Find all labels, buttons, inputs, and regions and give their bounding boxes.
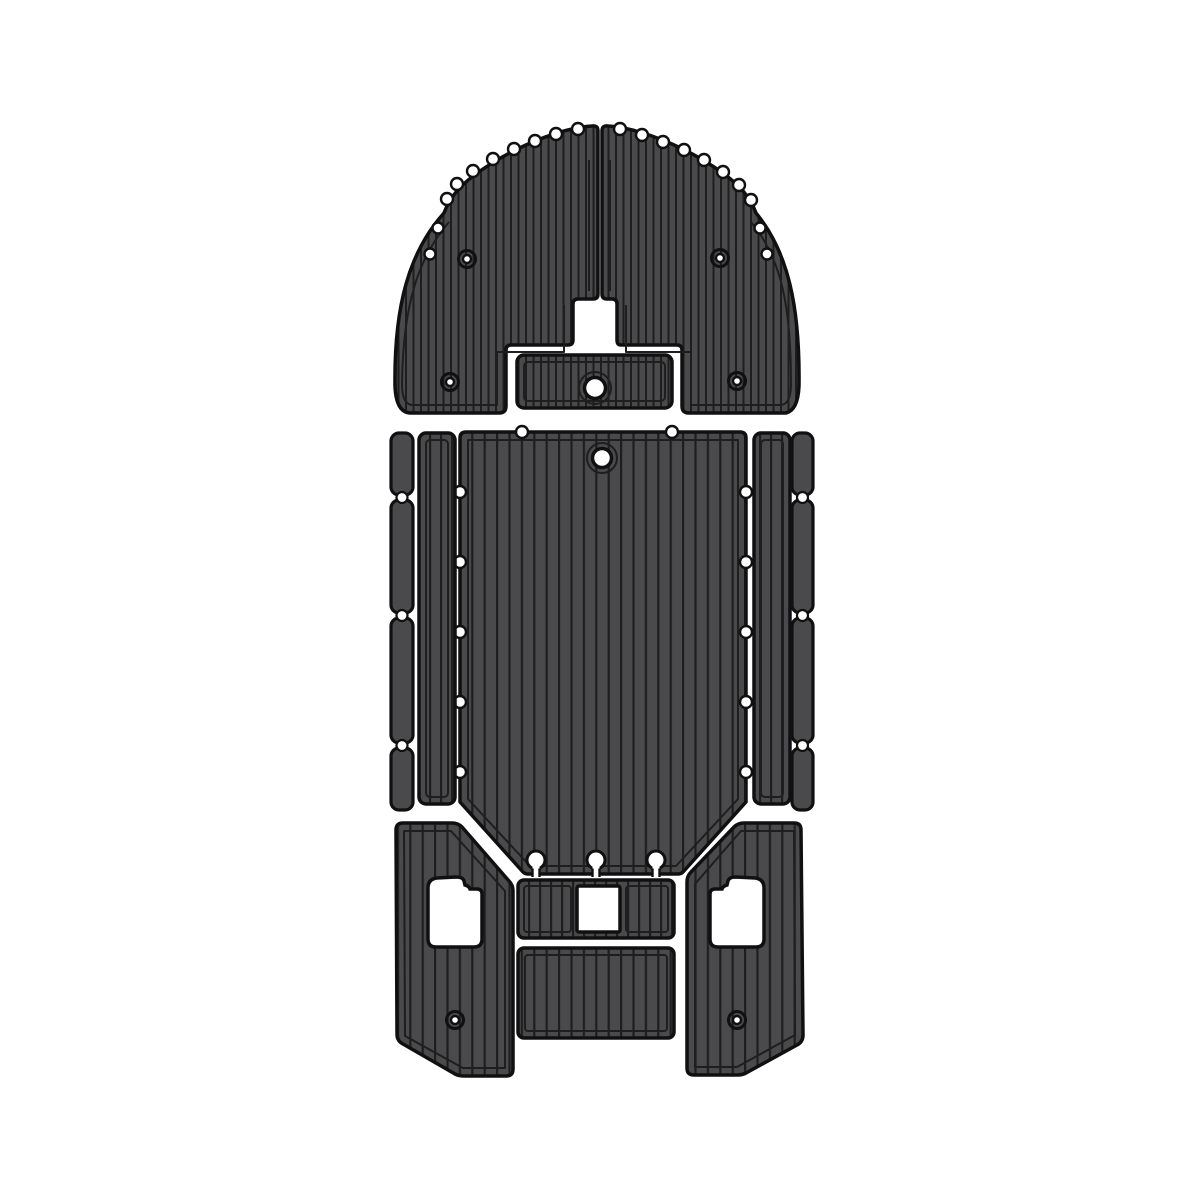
transom-pad-starboard — [687, 823, 803, 1075]
strip-joint-notch — [797, 610, 808, 621]
cockpit-floor-pad — [447, 419, 759, 877]
console-step-pad — [518, 880, 674, 938]
gunwale-strip-segment — [391, 500, 413, 613]
strip-joint-notch — [397, 740, 408, 751]
console-square-cutout — [577, 886, 620, 932]
floor-top-notch — [516, 426, 528, 438]
strip-joint-notch — [797, 740, 808, 751]
floor-round-hole — [593, 449, 612, 468]
gunwale-strip-column-port — [391, 433, 413, 810]
floor-top-notch — [666, 426, 678, 438]
gunwale-strip-segment — [391, 748, 413, 810]
side-runner-starboard — [754, 433, 790, 804]
gunwale-strip-segment — [391, 618, 413, 743]
transom-starboard-bracket-cutout — [710, 877, 764, 947]
gunwale-strip-segment — [792, 748, 813, 810]
strip-joint-notch — [797, 492, 808, 503]
transom-port-bracket-cutout — [428, 877, 482, 947]
deck-pad-set-illustration — [0, 0, 1200, 1200]
gunwale-strip-segment — [792, 618, 813, 743]
bow-hatch-pad — [517, 355, 672, 408]
gunwale-strip-segment — [391, 433, 413, 495]
hatch-round-hole — [585, 378, 606, 399]
gunwale-strip-segment — [792, 433, 813, 495]
side-runner-port — [419, 433, 455, 804]
product-image-canvas — [0, 0, 1200, 1200]
gunwale-strip-column-starboard — [792, 433, 813, 810]
gunwale-strip-segment — [792, 500, 813, 613]
strip-joint-notch — [397, 492, 408, 503]
strip-joint-notch — [397, 610, 408, 621]
transom-step-pad — [518, 948, 674, 1038]
